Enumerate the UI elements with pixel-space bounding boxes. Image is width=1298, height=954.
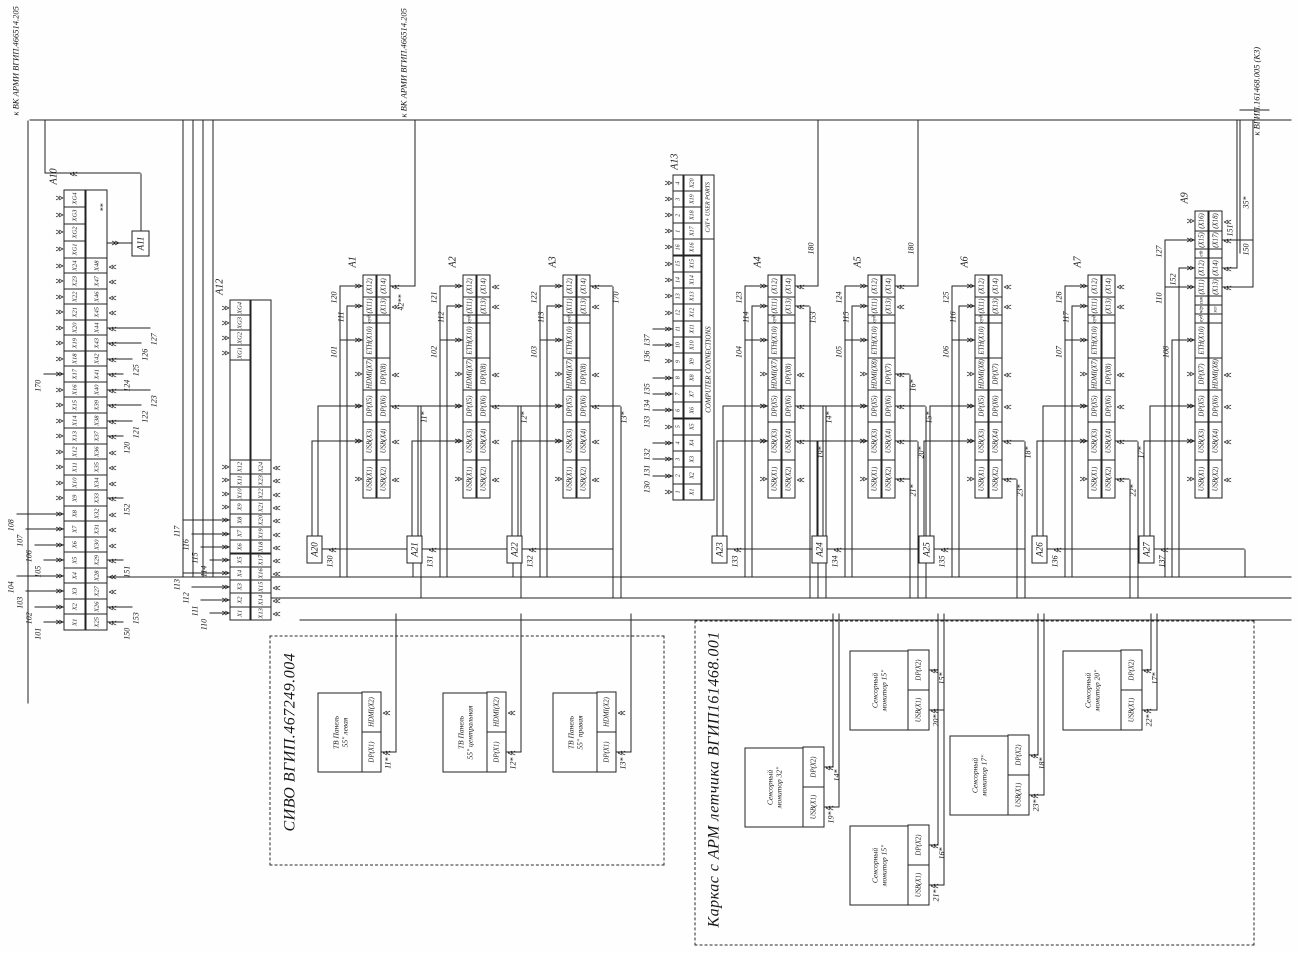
port-cell: X10 (684, 337, 702, 354)
wire-label: 153 (810, 312, 818, 370)
wire-label: 18* (1039, 758, 1047, 794)
port-cell: (X14) (577, 275, 591, 298)
port-cell: USB(X4) (377, 422, 391, 461)
chevron-icon: ≫ (111, 239, 119, 247)
bus-line (745, 287, 746, 578)
chevron-icon: ≫ (55, 324, 63, 332)
port-cell: USB(X1) (1121, 690, 1143, 731)
port-cell: DP(X5) (1195, 390, 1209, 423)
connector-cell: X6 (64, 537, 86, 554)
chevron-icon: ≫ (554, 475, 562, 483)
ext-box: А25 (919, 536, 935, 564)
port-cell: (X14) (1102, 275, 1116, 298)
wire-label: 151 (124, 566, 132, 624)
chevron-icon: ≫ (55, 526, 63, 534)
chevron-icon: ≫ (796, 475, 804, 483)
block-label: А7 (1074, 256, 1085, 267)
wire-label: 152 (1170, 274, 1178, 332)
port-number-cell: 4 (673, 434, 684, 451)
port-cell (577, 315, 591, 324)
port-cell (782, 323, 796, 359)
port-cell: USB(X1) (908, 865, 930, 906)
connector-cell: X32 (86, 506, 108, 523)
chevron-icon: ≫ (930, 881, 938, 889)
chevron-icon: ≫ (221, 583, 229, 591)
chevron-icon: ≫ (507, 708, 515, 716)
chevron-icon: ≫ (591, 302, 599, 310)
chevron-icon: ≫ (664, 390, 672, 398)
chevron-icon: ≫ (1116, 370, 1124, 378)
chevron-icon: ≫ (664, 407, 672, 415)
connector-cell: X25 (86, 614, 108, 631)
port-cell (1209, 314, 1223, 324)
bus-line (512, 442, 513, 536)
bus-line (347, 307, 348, 578)
wire-label: 135 (939, 556, 947, 606)
wire-label: 122 (531, 292, 539, 350)
chevron-icon: ≫ (108, 386, 116, 394)
chevron-icon: ≫ (55, 557, 63, 565)
chevron-icon: ≫ (108, 495, 116, 503)
chevron-icon: ≫ (591, 282, 599, 290)
block-label: А3 (549, 256, 560, 267)
chevron-icon: ≫ (221, 477, 229, 485)
chevron-icon: ≫ (108, 262, 116, 270)
chevron-icon: ≫ (966, 437, 974, 445)
chevron-icon: ≫ (859, 370, 867, 378)
connector-cell: X1 (64, 614, 86, 631)
block-label: А9 (1181, 192, 1192, 203)
port-cell: X8 (684, 369, 702, 386)
port-cell: USB(X1) (1008, 775, 1030, 816)
chevron-icon: ≫ (221, 304, 229, 312)
connector-cell: X17 (251, 553, 272, 567)
chevron-icon: ≫ (966, 370, 974, 378)
connector-cell: X42 (86, 351, 108, 368)
chevron-icon: ≫ (796, 437, 804, 445)
wire-label: 137 (644, 334, 652, 392)
chevron-icon: ≫ (825, 803, 833, 811)
port-cell (377, 323, 391, 359)
chevron-icon: ≫ (55, 246, 63, 254)
port-cell: USB(X2) (377, 460, 391, 499)
connector-cell: X4 (230, 566, 251, 580)
connector-cell: X33 (86, 490, 108, 507)
chevron-icon: ≫ (491, 402, 499, 410)
port-cell: (X16) (1195, 211, 1209, 232)
chevron-icon: ≫ (108, 588, 116, 596)
port-number-cell: 6 (673, 402, 684, 419)
chevron-icon: ≫ (796, 282, 804, 290)
chevron-icon: ≫ (221, 463, 229, 471)
wire-label: 107 (17, 535, 25, 593)
chevron-icon: ≫ (428, 545, 436, 553)
port-cell: X2 (684, 467, 702, 484)
port-cell: (X11) (1088, 297, 1102, 316)
port-cell: X13 (684, 288, 702, 305)
chevron-icon: ≫ (108, 355, 116, 363)
chevron-icon: ≫ (391, 282, 399, 290)
chevron-icon: ≫ (591, 402, 599, 410)
connector-cell (230, 360, 251, 461)
connector-cell: X16 (251, 566, 272, 580)
port-cell: USB(X1) (975, 460, 989, 499)
chevron-icon: ≫ (108, 510, 116, 518)
chevron-icon: ≫ (1223, 370, 1231, 378)
connector-cell: X15 (251, 580, 272, 594)
bus-line (631, 614, 632, 753)
ext-box: А22 (507, 536, 523, 564)
chevron-icon: ≫ (759, 337, 767, 345)
chevron-icon: ≫ (664, 244, 672, 252)
chevron-icon: ≫ (272, 477, 280, 485)
connector-cell: X46 (86, 289, 108, 306)
connector-cell: X1 (230, 606, 251, 620)
chevron-icon: ≫ (1003, 302, 1011, 310)
wire-label: 123 (151, 395, 159, 453)
connector-cell: X40 (86, 382, 108, 399)
chevron-icon: ≫ (108, 603, 116, 611)
chevron-icon: ≫ (1116, 437, 1124, 445)
port-number-cell: 3 (673, 191, 684, 208)
connector-cell: X5 (64, 552, 86, 569)
port-cell: USB(X3) (463, 422, 477, 461)
chevron-icon: ≫ (55, 371, 63, 379)
bus-line (1240, 110, 1270, 111)
chevron-icon: ≫ (108, 479, 116, 487)
chevron-icon: ≫ (491, 437, 499, 445)
chevron-icon: ≫ (354, 302, 362, 310)
chevron-icon: ≫ (108, 402, 116, 410)
chevron-icon: ≫ (664, 260, 672, 268)
chevron-icon: ≫ (55, 417, 63, 425)
connector-cell: X20 (251, 513, 272, 527)
bus-line (45, 121, 46, 174)
port-number-cell: 3 (673, 451, 684, 468)
chevron-icon: ≫ (55, 448, 63, 456)
port-cell: DP(X5) (768, 390, 782, 423)
bus-line (818, 121, 819, 287)
port-cell: DP(X6) (882, 390, 896, 423)
port-number-cell: 15 (673, 255, 684, 272)
connector-cell: X13 (64, 428, 86, 445)
wire-label: 121 (431, 292, 439, 350)
port-cell: DP(X7) (1195, 358, 1209, 391)
bus-line (30, 120, 1292, 121)
connector-cell: X22 (251, 487, 272, 501)
port-number-cell: 4 (673, 175, 684, 192)
bus-line (183, 121, 184, 578)
chevron-icon: ≫ (896, 402, 904, 410)
port-number-cell: 5 (673, 418, 684, 435)
wire-label: 110 (201, 619, 209, 677)
bus-line (845, 287, 846, 578)
chevron-icon: ≫ (896, 437, 904, 445)
port-cell: (X12) (563, 275, 577, 298)
port-cell: DP(X2) (1008, 735, 1030, 776)
port-cell: (X14) (377, 275, 391, 298)
connector-cell: X9 (230, 500, 251, 514)
port-cell: USB(X4) (577, 422, 591, 461)
port-cell: чёр (1195, 305, 1209, 315)
chevron-icon: ≫ (930, 706, 938, 714)
port-cell: USB(X1) (803, 787, 825, 828)
chevron-icon: ≫ (55, 229, 63, 237)
bus-line (952, 287, 953, 578)
port-cell: X14 (684, 271, 702, 288)
chevron-icon: ≫ (1186, 283, 1194, 291)
bus-line (540, 287, 541, 578)
ext-box: А21 (407, 536, 423, 564)
port-cell: ауд (768, 315, 782, 324)
chevron-icon: ≫ (1079, 370, 1087, 378)
port-cell: HDMI(X7) (768, 358, 782, 391)
port-cell: X11 (684, 320, 702, 337)
connector-cell: X28 (86, 568, 108, 585)
port-cell: X17 (684, 223, 702, 240)
port-number-cell: 12 (673, 304, 684, 321)
chevron-icon: ≫ (1003, 437, 1011, 445)
port-number-cell: 13 (673, 288, 684, 305)
bus-line (918, 121, 919, 287)
connector-cell: X9 (64, 490, 86, 507)
chevron-icon: ≫ (272, 570, 280, 578)
bus-line (1240, 121, 1241, 254)
connector-cell: X44 (86, 320, 108, 337)
chevron-icon: ≫ (617, 708, 625, 716)
chevron-icon: ≫ (1186, 236, 1194, 244)
wire-label: 153 (133, 612, 141, 670)
chevron-icon: ≫ (664, 309, 672, 317)
chevron-icon: ≫ (1116, 402, 1124, 410)
wire-label: 134 (832, 556, 840, 606)
wire-label: 17* (1152, 673, 1160, 709)
chevron-icon: ≫ (55, 262, 63, 270)
port-cell: DP(X1) (362, 732, 382, 773)
chevron-icon: ≫ (1186, 402, 1194, 410)
ext-box: А23 (712, 536, 728, 564)
port-cell: ауд (975, 315, 989, 324)
chevron-icon: ≫ (859, 475, 867, 483)
bus-line (193, 121, 194, 578)
block-label: А5 (854, 256, 865, 267)
port-cell: ETH(X10) (1088, 323, 1102, 359)
port-cell (782, 315, 796, 324)
chevron-icon: ≫ (221, 610, 229, 618)
connector-cell: XG1 (230, 345, 251, 361)
bus-line (752, 307, 753, 578)
port-cell: X5 (684, 418, 702, 435)
port-cell: DP(X8) (577, 358, 591, 391)
port-number-cell: 10 (673, 337, 684, 354)
chevron-icon: ≫ (507, 748, 515, 756)
port-cell: X1 (684, 483, 702, 500)
chevron-icon: ≫ (664, 456, 672, 464)
connector-cell: X23 (64, 273, 86, 290)
port-cell: (X14) (782, 275, 796, 298)
port-cell: ETH(X10) (1195, 323, 1209, 359)
port-cell: HDMI(X8) (975, 358, 989, 391)
port-cell: (X12) (868, 275, 882, 298)
port-cell: ауд (1195, 314, 1209, 324)
chevron-icon: ≫ (759, 402, 767, 410)
chevron-icon: ≫ (1143, 706, 1151, 714)
connector-cell: X11 (64, 459, 86, 476)
port-cell: USB(X2) (1209, 460, 1223, 499)
chevron-icon: ≫ (55, 541, 63, 549)
chevron-icon: ≫ (896, 370, 904, 378)
port-cell: USB(X3) (1195, 422, 1209, 461)
port-cell: (X12) (363, 275, 377, 298)
bus-line (440, 287, 441, 578)
chevron-icon: ≫ (55, 464, 63, 472)
chevron-icon: ≫ (272, 556, 280, 564)
chevron-icon: ≫ (1186, 475, 1194, 483)
chevron-icon: ≫ (554, 370, 562, 378)
chevron-icon: ≫ (1186, 370, 1194, 378)
bus-line (1072, 307, 1073, 578)
sivo-title: СИВО ВГИП.467249.004 (282, 653, 300, 832)
port-cell: DP(X8) (377, 358, 391, 391)
chevron-icon: ≫ (221, 596, 229, 604)
chevron-icon: ≫ (664, 488, 672, 496)
touch-monitor-name: Сенсорныймонитор 17" (951, 737, 1009, 815)
bus-line (1065, 287, 1066, 578)
touch-monitor-name: Сенсорныймонитор 15" (851, 652, 909, 730)
port-cell: USB(X2) (577, 460, 591, 499)
port-cell: (X13) (477, 297, 491, 316)
wire-label: 101 (35, 628, 43, 686)
connector-cell: X36 (86, 444, 108, 461)
connector-cell: X38 (86, 413, 108, 430)
port-cell: DP(X6) (1209, 390, 1223, 423)
connector-cell: X5 (230, 553, 251, 567)
connector-cell: X14 (64, 413, 86, 430)
chevron-icon: ≫ (664, 439, 672, 447)
connector-cell: X21 (64, 304, 86, 321)
port-cell: ауд (463, 315, 477, 324)
touch-monitor-name: Сенсорныймонитор 15" (851, 827, 909, 905)
connector-cell: X7 (64, 521, 86, 538)
port-cell: DP(X7) (882, 358, 896, 391)
chevron-icon: ≫ (1223, 236, 1231, 244)
port-cell: DP(X7) (989, 358, 1003, 391)
chevron-icon: ≫ (1079, 402, 1087, 410)
bus-line (141, 174, 142, 231)
chevron-icon: ≫ (664, 276, 672, 284)
block-label: А6 (961, 256, 972, 267)
bus-line (717, 442, 718, 536)
chevron-icon: ≫ (528, 545, 536, 553)
connector-cell: X17 (64, 366, 86, 383)
connector-cell: X18 (251, 540, 272, 554)
port-cell: DP(X8) (477, 358, 491, 391)
wire-label: 113 (174, 579, 182, 637)
port-cell: USB(X4) (782, 422, 796, 461)
wire-label: 14* (834, 770, 842, 806)
schematic-viewport: к ВК АРМИ ВГИП.466514.205 к ВК АРМИ ВГИП… (0, 0, 1298, 953)
wire-label: 112 (183, 592, 191, 650)
chevron-icon: ≫ (664, 374, 672, 382)
chevron-icon: ≫ (272, 517, 280, 525)
chevron-icon: ≫ (859, 302, 867, 310)
connector-cell: X27 (86, 583, 108, 600)
bus-line (924, 442, 925, 536)
port-cell: HDMI(X7) (363, 358, 377, 391)
chevron-icon: ≫ (966, 402, 974, 410)
chevron-icon: ≫ (221, 490, 229, 498)
chevron-icon: ≫ (664, 358, 672, 366)
chevron-icon: ≫ (1003, 475, 1011, 483)
block-label: А4 (754, 256, 765, 267)
port-cell: USB(X2) (477, 460, 491, 499)
chevron-icon: ≫ (664, 293, 672, 301)
bus-line (1253, 121, 1254, 241)
offpage-ref-3: к ВГИП.161468.005 (К3) (1253, 47, 1262, 136)
port-cell (882, 323, 896, 359)
bus-line (930, 407, 931, 536)
port-cell: (X18) (1209, 211, 1223, 232)
wire-label: 125 (133, 364, 141, 422)
port-cell: X19 (684, 191, 702, 208)
wire-label: 130 (327, 556, 335, 606)
wire-label: 111 (192, 606, 200, 664)
port-cell: X7 (684, 385, 702, 402)
chevron-icon: ≫ (328, 545, 336, 553)
connector-cell: X3 (230, 580, 251, 594)
chevron-icon: ≫ (664, 180, 672, 188)
block-label: А13 (671, 154, 682, 170)
chevron-icon: ≫ (664, 423, 672, 431)
bus-line (418, 407, 419, 536)
chevron-icon: ≫ (55, 495, 63, 503)
chevron-icon: ≫ (108, 541, 116, 549)
bus-line (396, 614, 397, 753)
connector-cell: X2 (64, 599, 86, 616)
wire-label: 123 (736, 292, 744, 350)
wire-label: 18* (1025, 447, 1033, 505)
port-cell: (X12) (975, 275, 989, 298)
chevron-icon: ≫ (491, 370, 499, 378)
connector-cell: X47 (86, 273, 108, 290)
port-cell (1209, 296, 1223, 306)
chevron-icon: ≫ (859, 282, 867, 290)
wire-label: 16* (910, 380, 918, 438)
port-cell: USB(X4) (477, 422, 491, 461)
port-cell: X12 (684, 304, 702, 321)
wire-label: 126 (1056, 292, 1064, 350)
connector-cell: X10 (64, 475, 86, 492)
port-cell: (X11) (1195, 278, 1209, 297)
connector-cell: X41 (86, 366, 108, 383)
bus-line (1043, 407, 1044, 536)
connector-cell: X34 (86, 475, 108, 492)
chevron-icon: ≫ (591, 370, 599, 378)
bus-line (340, 287, 341, 578)
connector-cell: XG4 (230, 300, 251, 316)
port-cell (882, 315, 896, 324)
port-cell: DP(X8) (782, 358, 796, 391)
chevron-icon: ≫ (1223, 402, 1231, 410)
bus-line (823, 407, 824, 536)
wire-label: 103 (17, 597, 25, 655)
chevron-icon: ≫ (382, 708, 390, 716)
wire-label: 17* (1138, 447, 1146, 505)
bus-line (518, 407, 519, 536)
bus-line (547, 307, 548, 578)
ext-box: А26 (1032, 536, 1048, 564)
port-cell (477, 323, 491, 359)
